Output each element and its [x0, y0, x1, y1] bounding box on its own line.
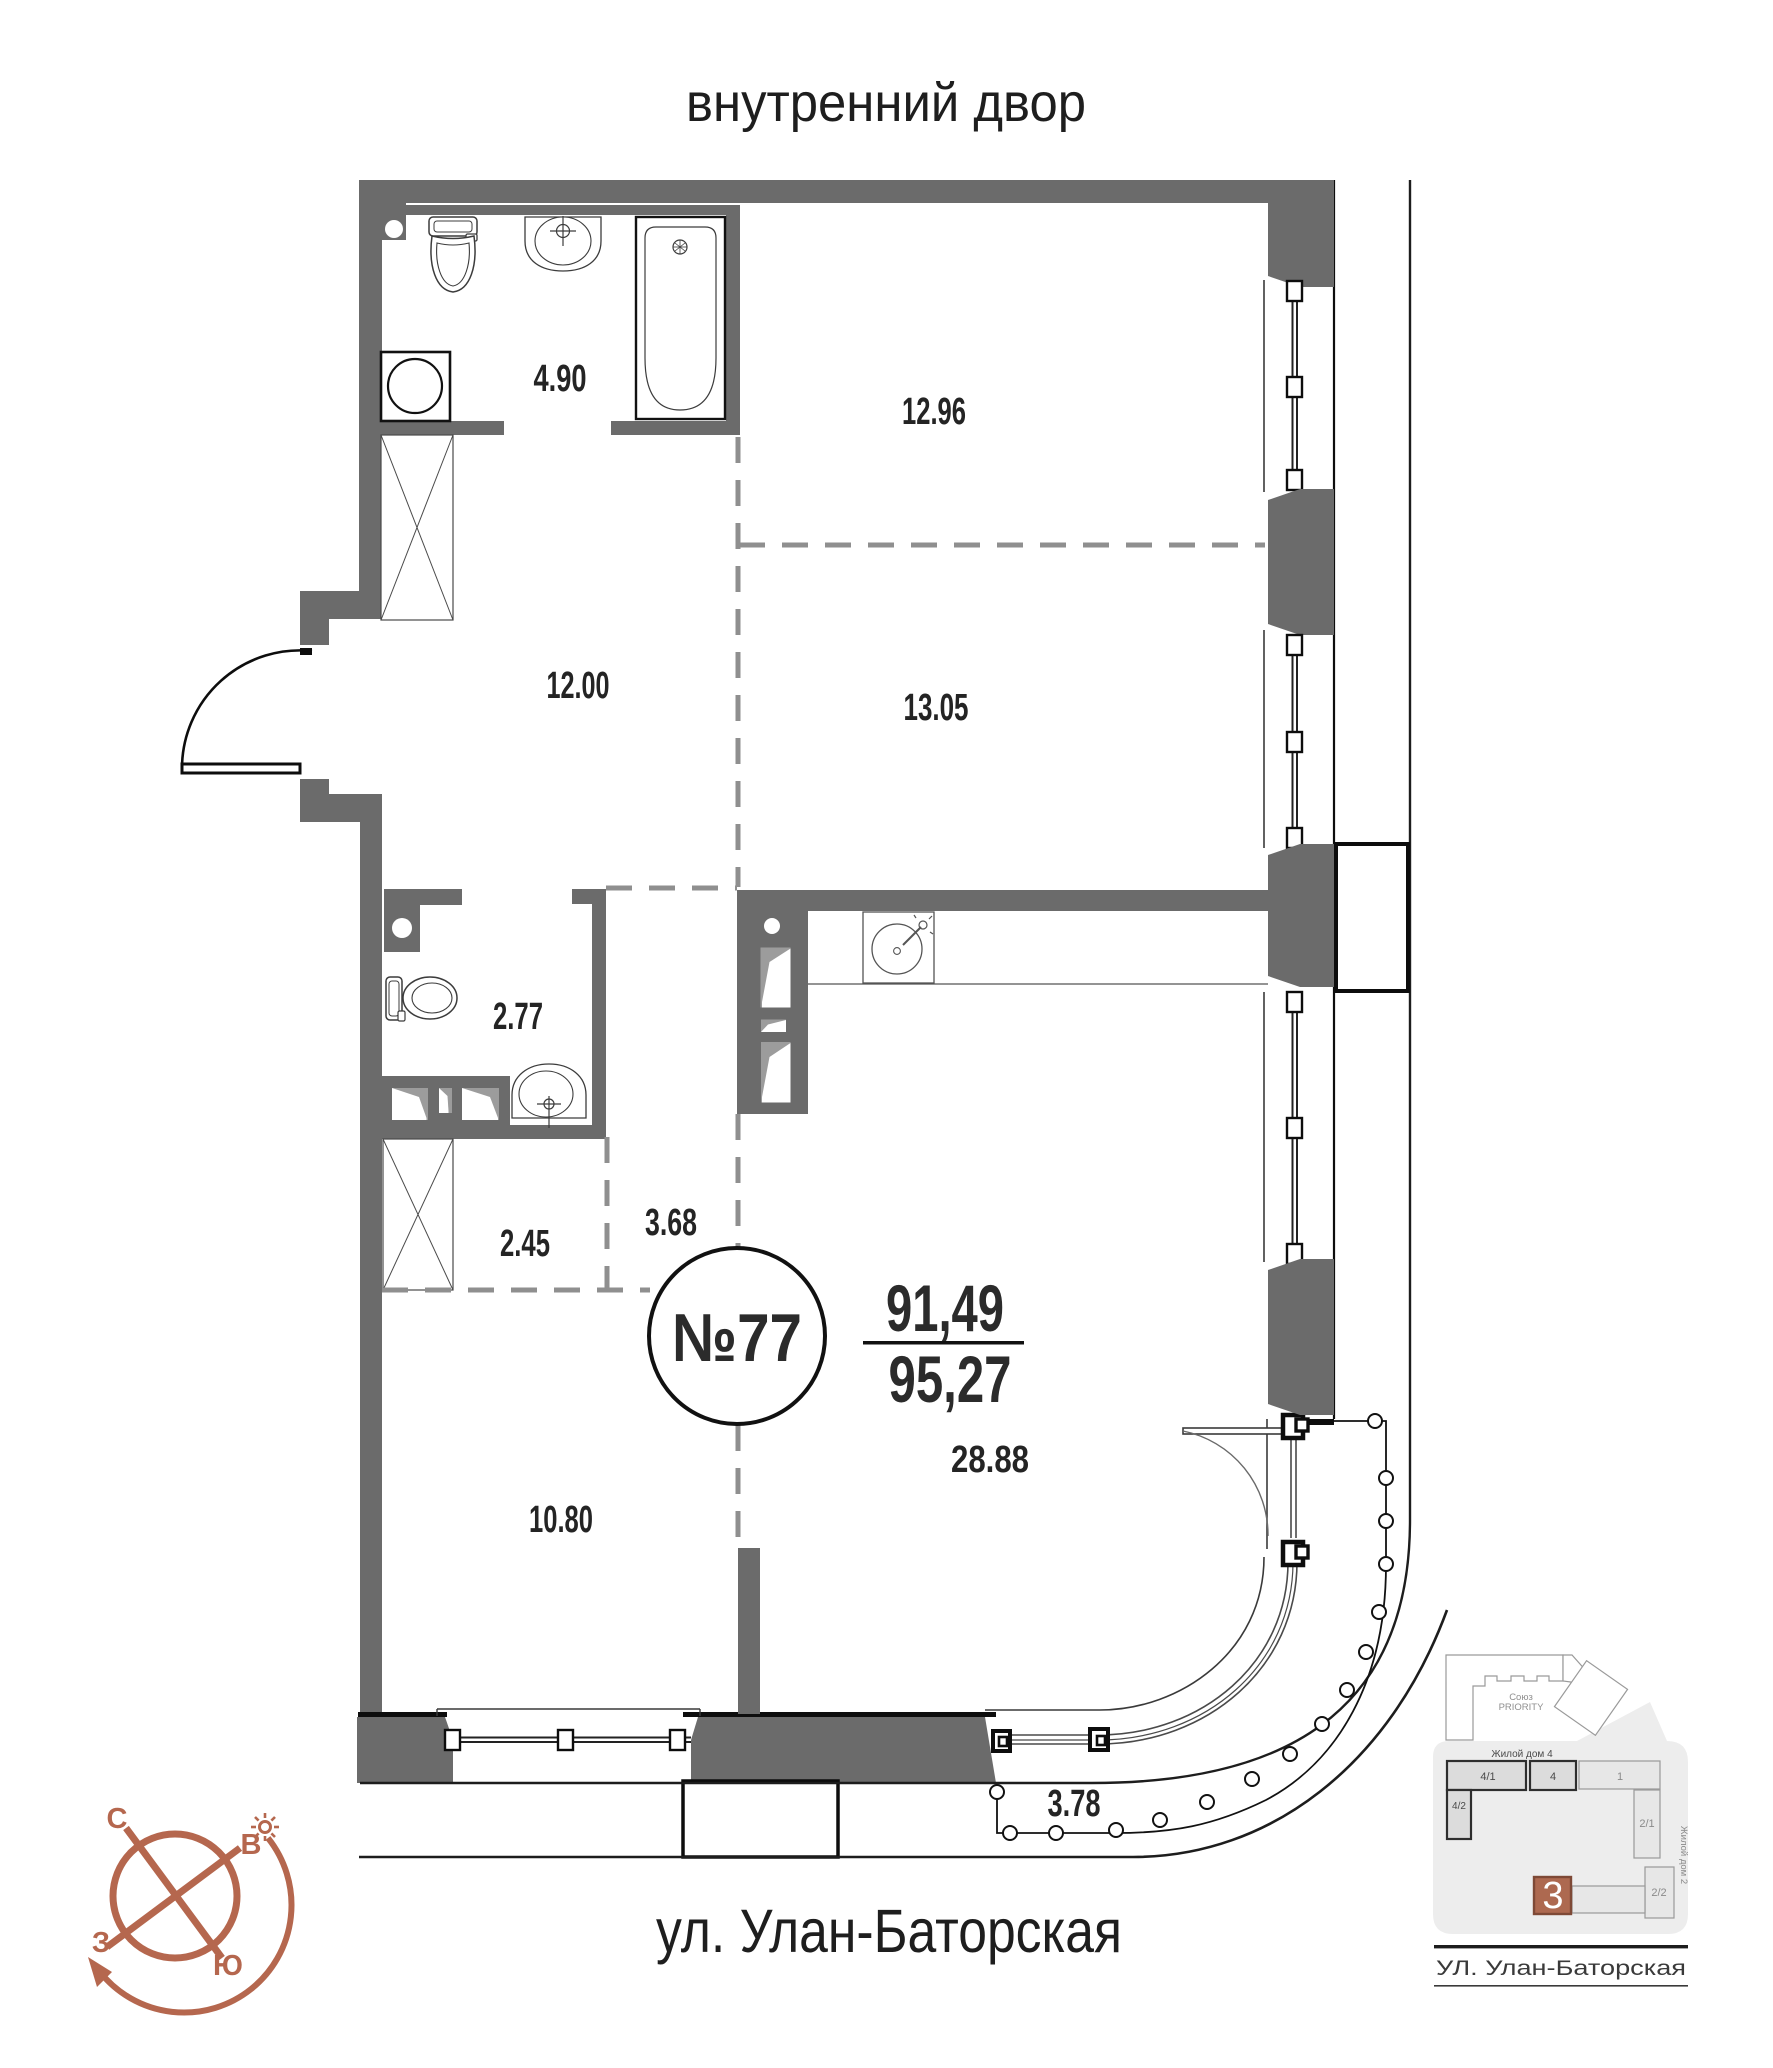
svg-text:13.05: 13.05 [904, 687, 969, 729]
svg-text:4.90: 4.90 [534, 358, 587, 400]
svg-text:10.80: 10.80 [529, 1499, 593, 1541]
svg-text:2/1: 2/1 [1639, 1818, 1654, 1830]
svg-text:12.96: 12.96 [902, 391, 966, 433]
svg-text:ул. Улан-Баторская: ул. Улан-Баторская [656, 1897, 1122, 1965]
svg-text:Ю: Ю [213, 1950, 243, 1982]
svg-text:З: З [92, 1927, 110, 1959]
svg-text:95,27: 95,27 [889, 1342, 1012, 1416]
svg-text:PRIORITY: PRIORITY [1499, 1702, 1545, 1713]
svg-text:С: С [107, 1803, 128, 1835]
svg-text:внутренний двор: внутренний двор [686, 73, 1086, 133]
svg-text:1: 1 [1617, 1771, 1623, 1783]
svg-text:91,49: 91,49 [886, 1271, 1004, 1345]
svg-text:Жилой дом 2: Жилой дом 2 [1678, 1826, 1689, 1884]
svg-text:Жилой дом 4: Жилой дом 4 [1491, 1749, 1553, 1760]
svg-text:4: 4 [1550, 1771, 1556, 1783]
svg-text:2.77: 2.77 [493, 996, 543, 1038]
svg-text:4/2: 4/2 [1452, 1801, 1466, 1812]
svg-text:28.88: 28.88 [951, 1439, 1029, 1481]
svg-text:2.45: 2.45 [500, 1223, 550, 1265]
svg-text:2/2: 2/2 [1651, 1887, 1666, 1899]
svg-text:УЛ. Улан-Баторская: УЛ. Улан-Баторская [1436, 1957, 1686, 1980]
svg-text:3.78: 3.78 [1048, 1783, 1101, 1825]
svg-text:4/1: 4/1 [1480, 1771, 1495, 1783]
svg-text:№77: №77 [672, 1300, 802, 1376]
svg-text:3.68: 3.68 [645, 1202, 697, 1244]
svg-text:3: 3 [1542, 1875, 1563, 1917]
svg-text:12.00: 12.00 [547, 665, 610, 707]
svg-text:В: В [241, 1829, 262, 1861]
